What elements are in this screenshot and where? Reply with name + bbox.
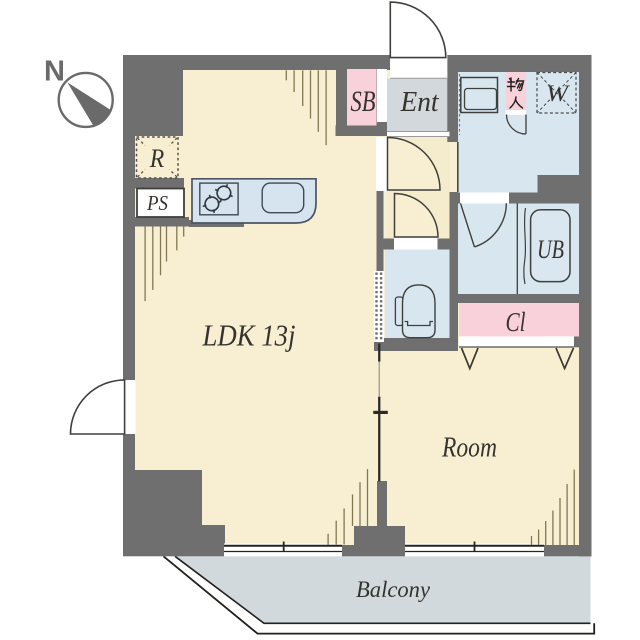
svg-text:Ent: Ent — [400, 87, 440, 118]
svg-text:W: W — [546, 81, 571, 107]
svg-text:N: N — [44, 56, 65, 88]
svg-text:PS: PS — [146, 191, 168, 215]
svg-text:LDK 13j: LDK 13j — [202, 318, 296, 353]
svg-text:Cl: Cl — [506, 307, 526, 337]
svg-text:Room: Room — [441, 433, 497, 464]
svg-text:R: R — [149, 144, 165, 173]
svg-text:UB: UB — [537, 235, 564, 264]
svg-text:SB: SB — [351, 85, 376, 118]
svg-text:Balcony: Balcony — [356, 577, 431, 602]
